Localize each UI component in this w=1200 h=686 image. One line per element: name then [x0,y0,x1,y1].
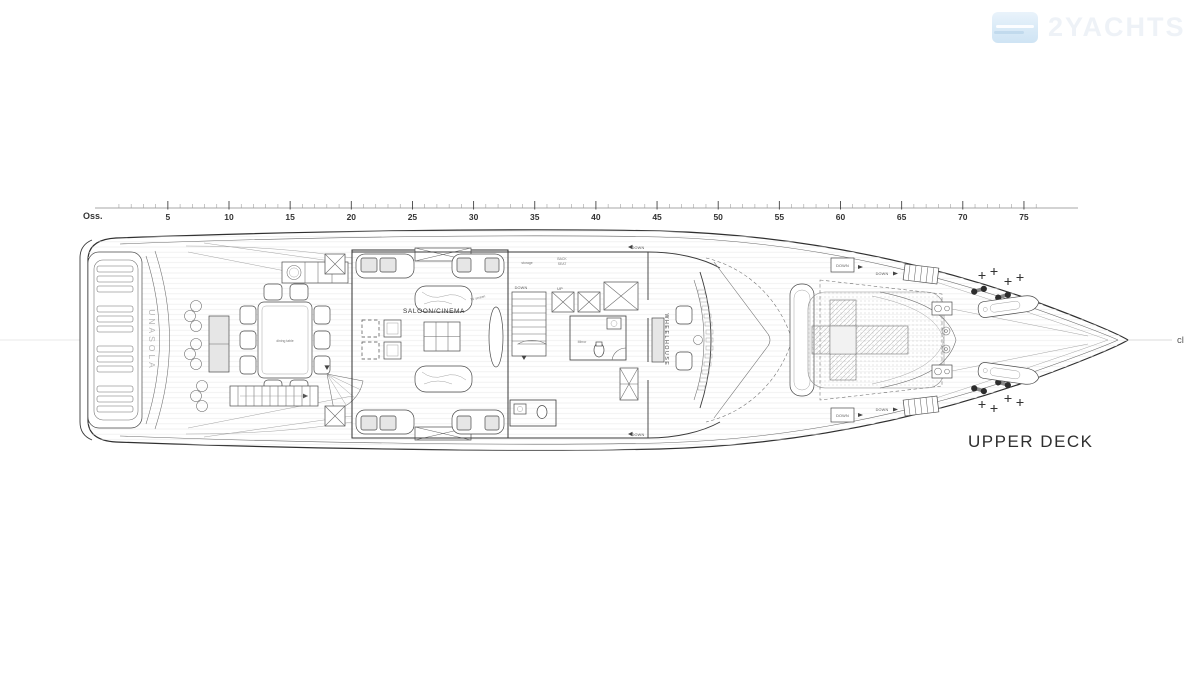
stairs-down-label: DOWN [515,286,528,290]
deck-plan-drawing: Oss. 51015202530354045505560657075 [0,0,1200,686]
centerline-label: cl [1177,335,1184,346]
main-staircase: DOWN [512,286,546,360]
deck-planking [80,228,1140,458]
aft-stairs [230,386,318,406]
yacht-name: UNASOLA [147,309,157,371]
mirror-label: Mirror [578,340,588,344]
svg-text:70: 70 [958,212,968,222]
svg-text:75: 75 [1019,212,1029,222]
svg-text:65: 65 [897,212,907,222]
svg-text:DOWN: DOWN [876,408,889,412]
svg-text:DOWN: DOWN [876,272,889,276]
ruler-ticks: 51015202530354045505560657075 [119,201,1036,222]
yacht-logo-icon [992,12,1038,43]
backseat-label-1: BACK [557,257,567,261]
walkway-down-bottom: DOWN [632,433,645,437]
backseat-label-2: SEAT [558,262,567,266]
saloon-label: SALOON/CINEMA [403,308,465,315]
wheelhouse-label: WHEELHOUSE [663,314,669,367]
helm-seat-stbd [676,352,692,370]
svg-text:60: 60 [836,212,846,222]
deck-title: UPPER DECK [968,432,1094,451]
coffee-table [424,322,460,351]
ruler-origin-label: Oss. [83,211,103,221]
logo-text: 2YACHTS [1048,12,1186,43]
svg-text:25: 25 [408,212,418,222]
sun-pad [808,292,944,388]
chart-table [652,318,664,362]
svg-text:5: 5 [165,212,170,222]
site-logo: 2YACHTS [992,12,1186,43]
helm-seat-port [676,306,692,324]
svg-text:30: 30 [469,212,479,222]
svg-text:45: 45 [652,212,662,222]
svg-text:35: 35 [530,212,540,222]
svg-text:20: 20 [347,212,357,222]
svg-text:DOWN: DOWN [836,264,849,268]
scale-ruler: Oss. 51015202530354045505560657075 [83,201,1078,222]
dining-table-label: dining table [276,339,293,343]
svg-text:55: 55 [775,212,785,222]
svg-text:DOWN: DOWN [836,414,849,418]
svg-text:10: 10 [224,212,234,222]
svg-text:50: 50 [713,212,723,222]
page: 2YACHTS Oss. 510152025303540455055606570… [0,0,1200,686]
svg-text:15: 15 [285,212,295,222]
storage-label: storage [521,261,532,265]
stairs-up-label: UP [557,287,563,291]
walkway-down-top: DOWN [632,246,645,250]
svg-text:40: 40 [591,212,601,222]
